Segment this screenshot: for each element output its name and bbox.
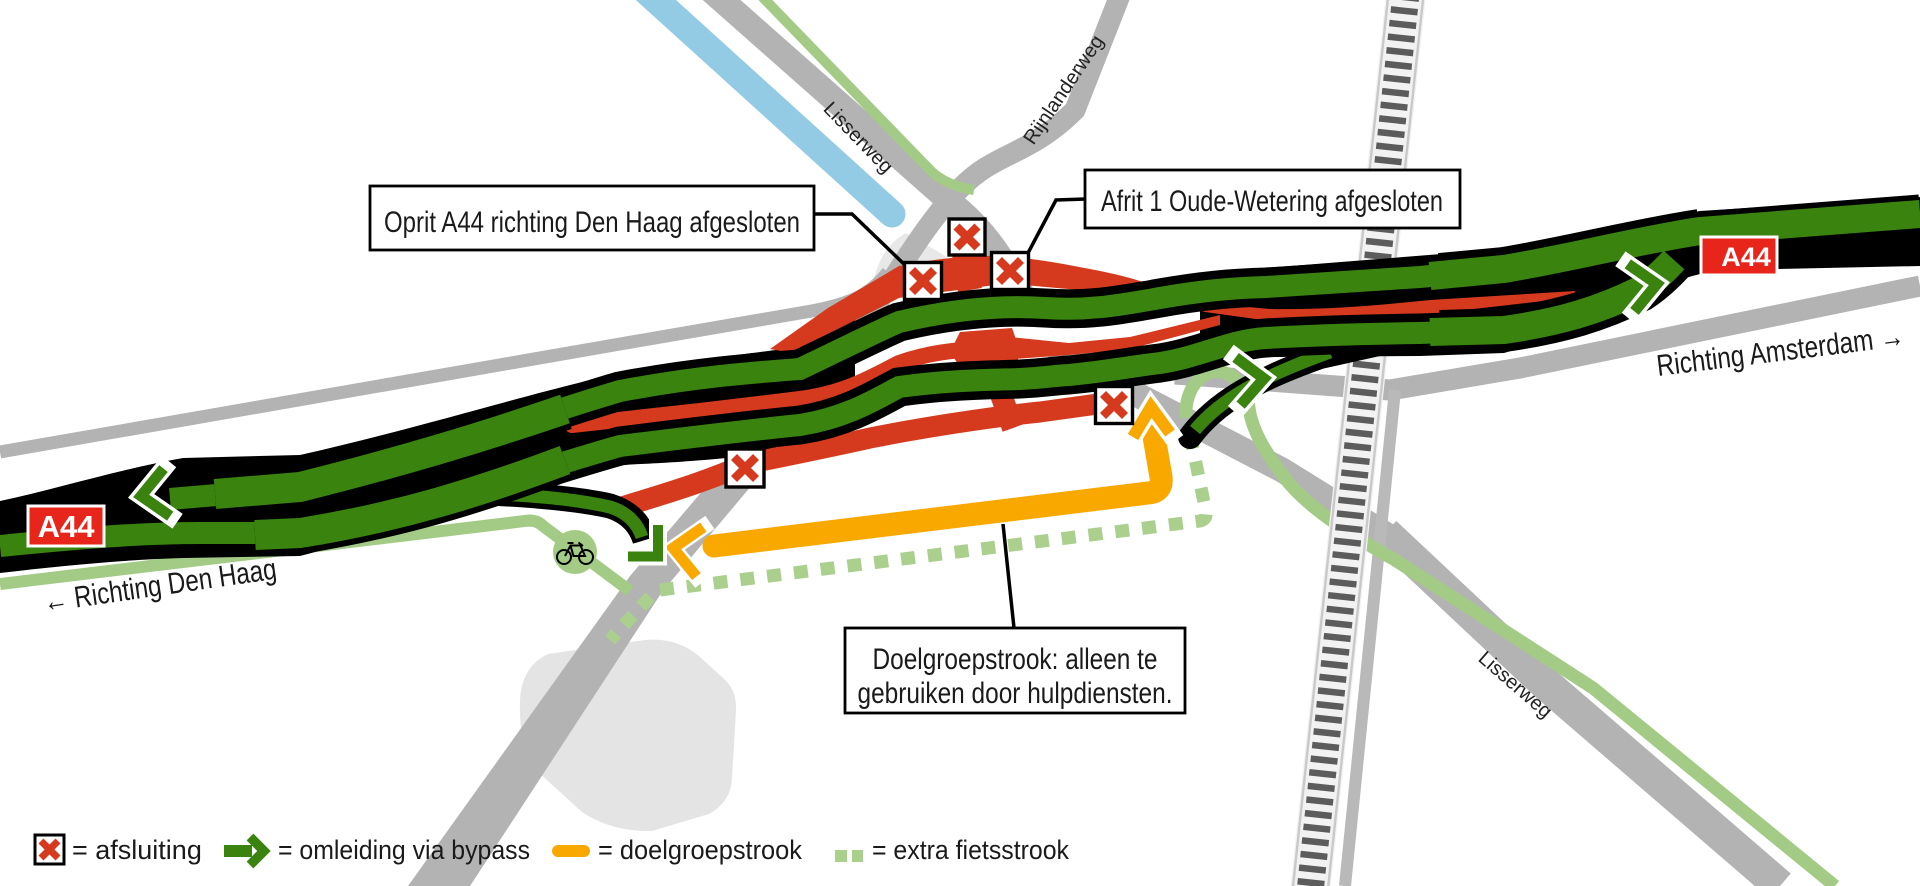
svg-text:= doelgroepstrook: = doelgroepstrook [598,835,802,865]
svg-text:= omleiding via bypass: = omleiding via bypass [278,835,530,865]
svg-text:Afrit 1 Oude-Wetering afgeslot: Afrit 1 Oude-Wetering afgesloten [1101,185,1443,218]
svg-text:A44: A44 [38,509,96,544]
svg-text:Doelgroepstrook: alleen te: Doelgroepstrook: alleen te [873,643,1158,676]
svg-text:gebruiken door hulpdiensten.: gebruiken door hulpdiensten. [858,677,1173,710]
svg-text:Oprit A44 richting Den Haag af: Oprit A44 richting Den Haag afgesloten [384,206,800,239]
svg-text:= extra fietsstrook: = extra fietsstrook [872,835,1069,865]
svg-text:= afsluiting: = afsluiting [72,835,202,865]
svg-text:A44: A44 [1721,242,1771,272]
